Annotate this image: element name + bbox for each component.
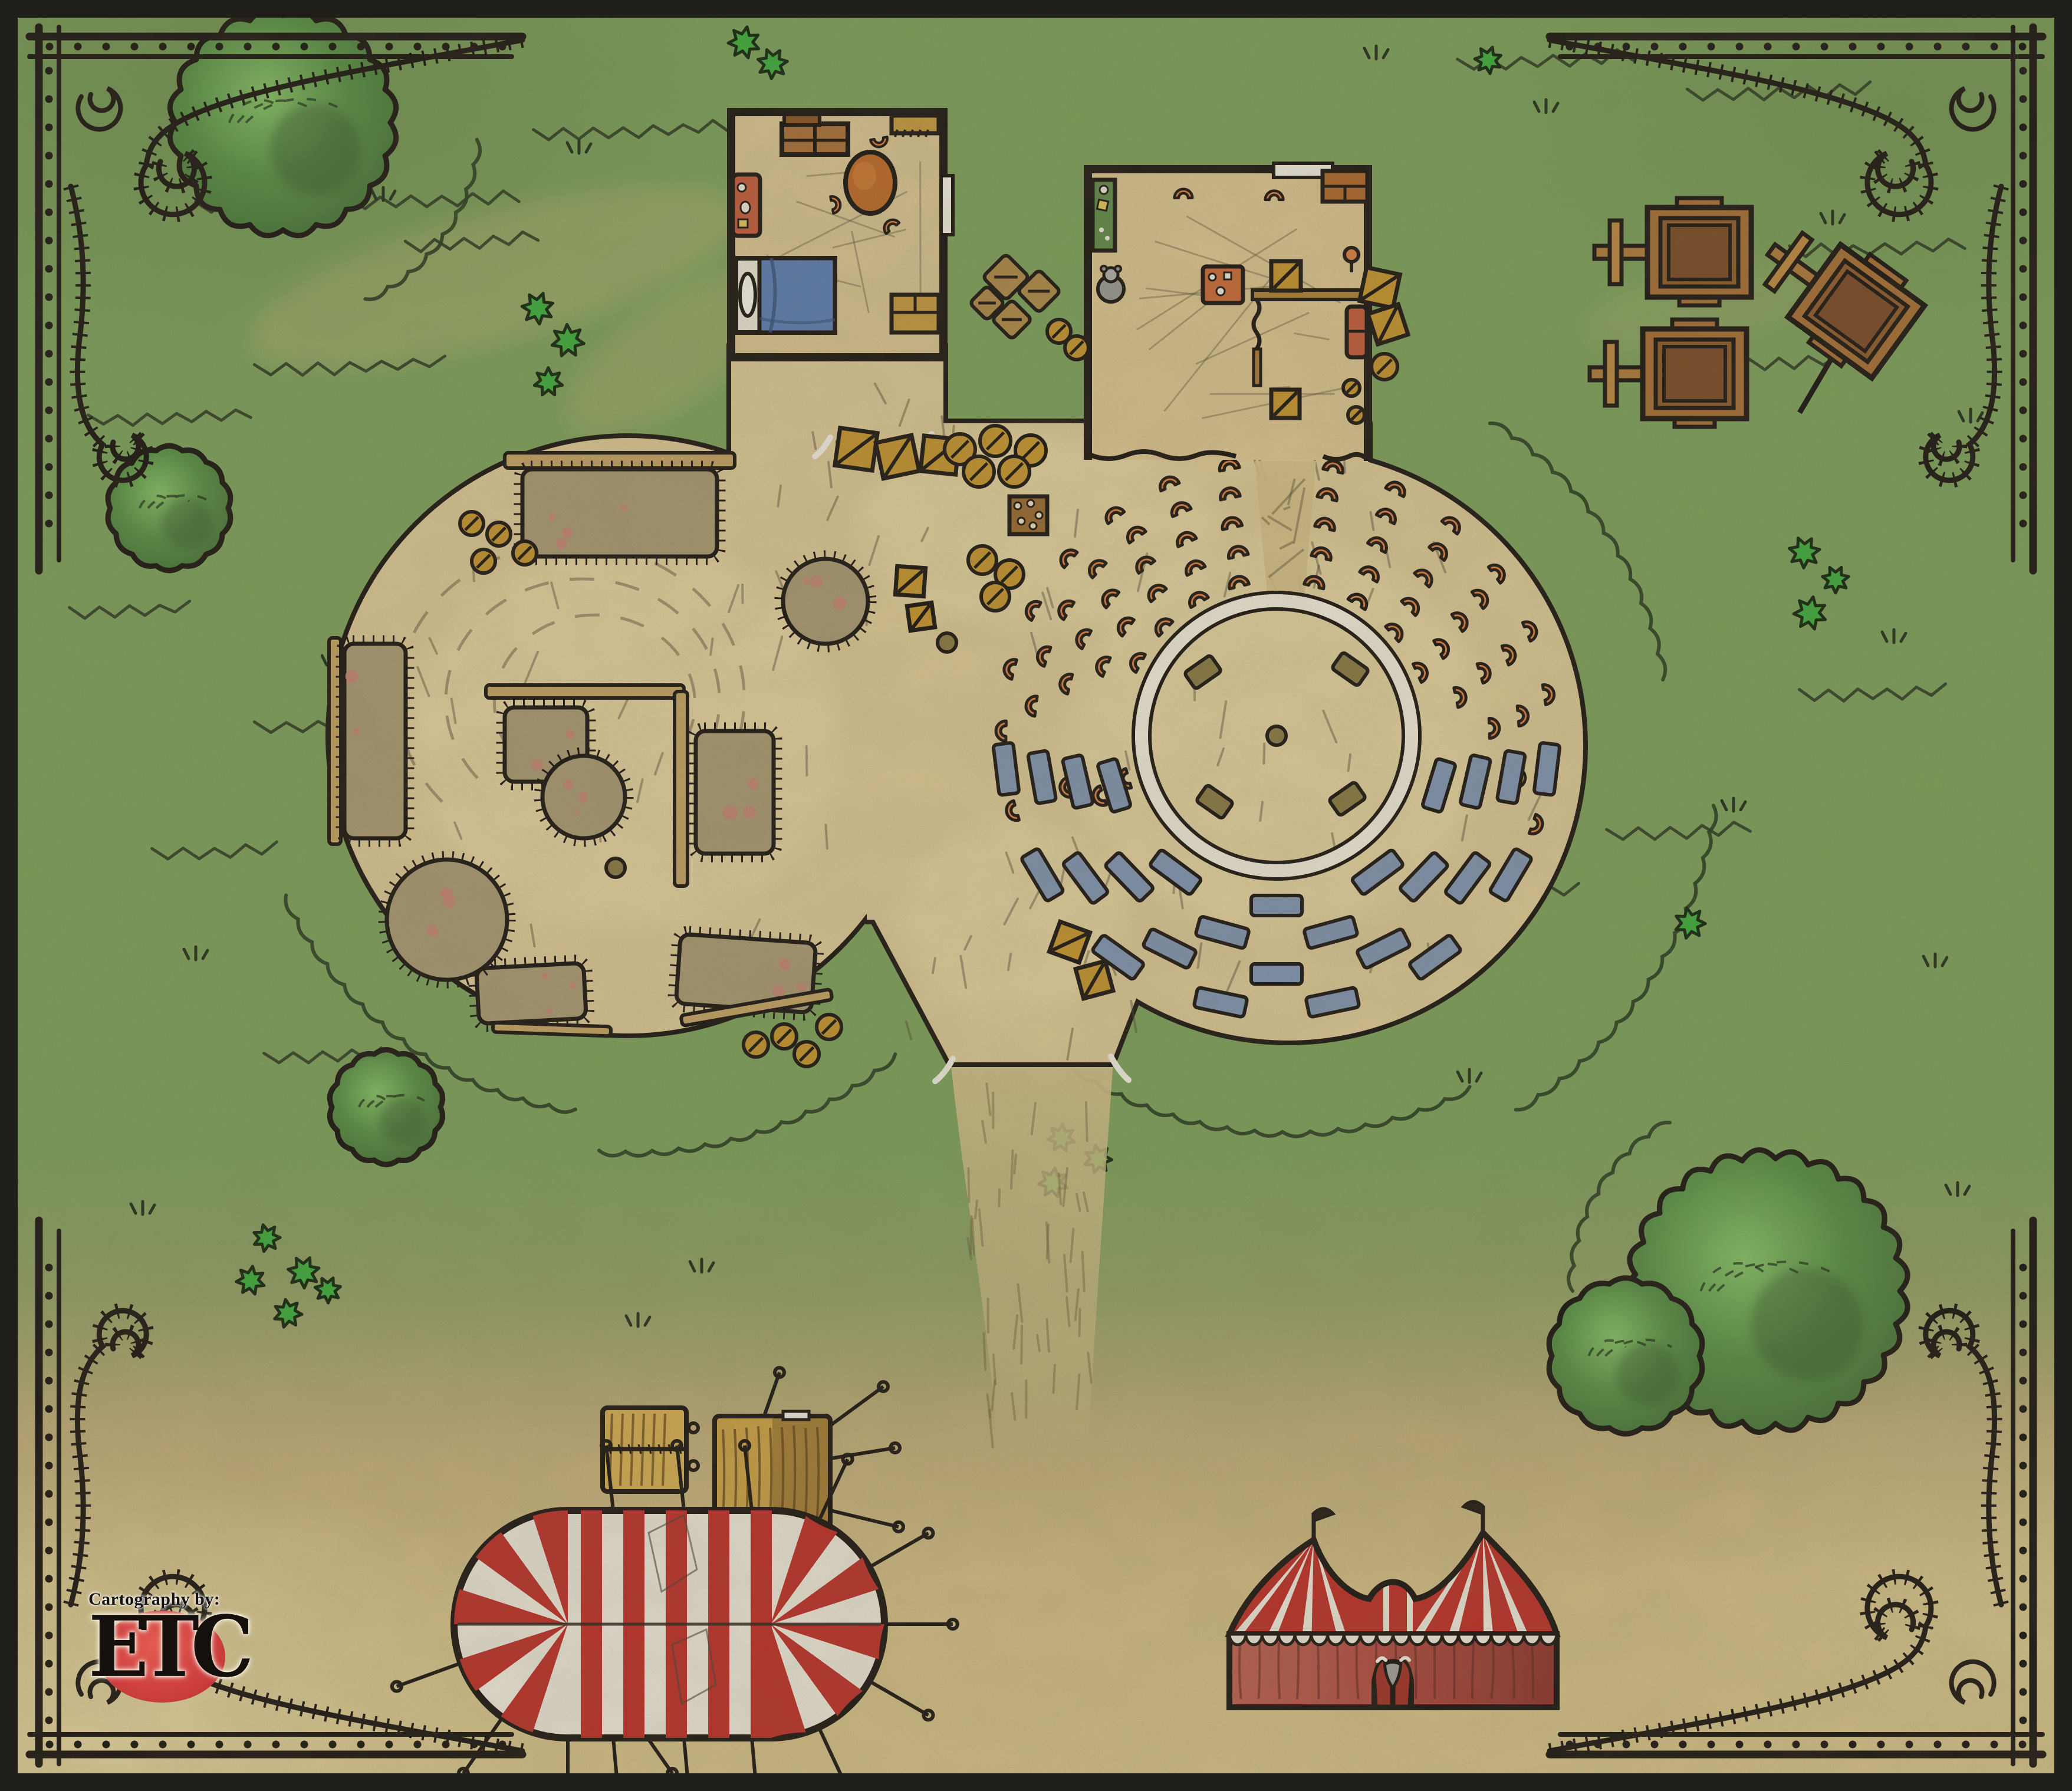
- circus-camp-map: [0, 0, 2072, 1791]
- credit-logo-text: ETC: [88, 1597, 233, 1695]
- cartographer-credit: Cartography by: ETC: [86, 1585, 251, 1726]
- paper-grain-texture: [0, 0, 2072, 1791]
- map-canvas: Cartography by: ETC: [0, 0, 2072, 1791]
